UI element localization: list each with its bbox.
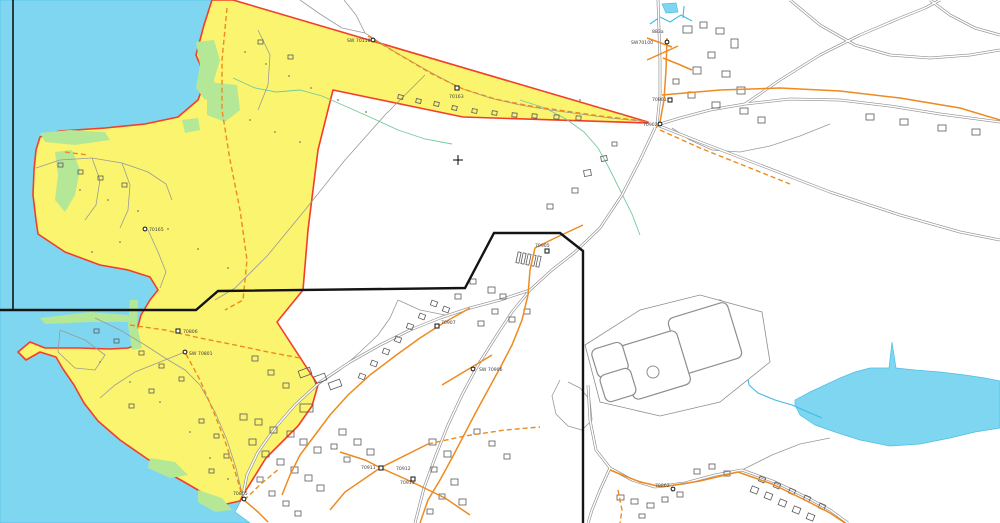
- asset-label: 70901: [652, 97, 667, 103]
- road-casing: [930, 0, 1000, 35]
- tree-speck: [129, 381, 131, 383]
- asset-label: 70902: [643, 122, 658, 128]
- building: [459, 499, 466, 505]
- building: [631, 499, 638, 504]
- tree-speck: [310, 87, 312, 89]
- asset-marker-circle: [665, 40, 669, 44]
- building: [317, 485, 324, 491]
- stream-blue: [650, 15, 692, 24]
- tree-speck: [167, 228, 169, 230]
- building: [478, 321, 484, 326]
- tree-speck: [137, 210, 139, 212]
- track-path: [552, 380, 592, 430]
- asset-marker-square: [455, 86, 459, 90]
- utility-main: [244, 500, 268, 522]
- asset-label: 70805: [233, 491, 248, 497]
- asset-label: SW 70801: [189, 351, 213, 357]
- building: [938, 125, 946, 131]
- building: [900, 119, 908, 125]
- asset-marker-square: [176, 329, 180, 333]
- building: [295, 511, 301, 516]
- asset-marker-circle: [671, 487, 675, 491]
- utility-main-dashed: [660, 130, 790, 184]
- road-centre: [790, 0, 1000, 58]
- tree-speck: [107, 199, 109, 201]
- tree-speck: [197, 248, 199, 250]
- building: [430, 300, 437, 307]
- asset-marker-square: [545, 249, 549, 253]
- asset-label: 70165: [149, 227, 164, 233]
- building: [344, 457, 350, 462]
- building: [504, 454, 510, 459]
- building: [740, 108, 748, 114]
- building: [314, 447, 321, 453]
- building: [584, 169, 592, 176]
- building: [639, 514, 645, 518]
- asset-marker-circle: [471, 367, 475, 371]
- building: [516, 252, 521, 263]
- asset-label: 70912: [396, 466, 411, 472]
- building: [709, 464, 715, 469]
- building: [708, 52, 715, 58]
- asset-label: 70913: [400, 480, 415, 486]
- tree-speck: [79, 189, 81, 191]
- tree-speck: [227, 478, 229, 480]
- asset-label: SW70100: [631, 40, 653, 46]
- asset-marker-square: [668, 98, 672, 102]
- asset-label: 70163: [449, 94, 464, 100]
- asset-marker-circle: [658, 122, 662, 126]
- tree-speck: [265, 63, 267, 65]
- asset-marker-square: [435, 324, 439, 328]
- building: [382, 348, 389, 355]
- tree-speck: [99, 361, 101, 363]
- ponds-layer: [585, 295, 770, 416]
- road-centre: [657, 99, 1000, 125]
- building: [367, 449, 374, 455]
- asset-marker-circle: [242, 497, 246, 501]
- building: [451, 479, 458, 485]
- building: [716, 28, 724, 34]
- building: [455, 294, 461, 299]
- building: [750, 486, 759, 494]
- tree-speck: [337, 99, 339, 101]
- building: [339, 429, 346, 435]
- building: [612, 142, 617, 146]
- building: [700, 22, 707, 28]
- crosshair-layer: [453, 155, 463, 165]
- track-path: [742, 438, 830, 470]
- building: [722, 71, 730, 77]
- building: [806, 513, 815, 521]
- tree-speck: [119, 241, 121, 243]
- asset-label: 70905: [535, 243, 550, 249]
- asset-label: 70862: [655, 483, 670, 489]
- road-centre: [930, 0, 1000, 35]
- building: [269, 491, 275, 496]
- asset-label: 70806: [183, 329, 198, 335]
- building: [470, 279, 476, 284]
- building: [427, 509, 433, 514]
- building: [300, 439, 307, 445]
- tree-speck: [244, 51, 246, 53]
- tree-speck: [227, 267, 229, 269]
- tree-speck: [274, 131, 276, 133]
- map-canvas[interactable]: SW 7011870163SW70100883a7090170902701657…: [0, 0, 1000, 523]
- road-casing: [657, 99, 1000, 125]
- lake-southeast: [795, 342, 1000, 446]
- building: [572, 188, 578, 193]
- road-centre: [657, 125, 1000, 240]
- building: [488, 287, 495, 293]
- asset-label: SW 70118: [347, 38, 371, 44]
- building: [277, 459, 284, 465]
- building: [972, 129, 980, 135]
- building: [792, 506, 801, 514]
- utility-main: [420, 225, 583, 523]
- asset-marker-circle: [143, 227, 147, 231]
- building: [328, 379, 342, 390]
- tree-speck: [288, 75, 290, 77]
- tree-speck: [91, 251, 93, 253]
- tree-speck: [159, 401, 161, 403]
- pond-north: [662, 3, 678, 13]
- building: [758, 117, 765, 123]
- utility-main: [647, 46, 678, 60]
- building: [647, 503, 654, 508]
- building: [354, 439, 361, 445]
- building: [444, 451, 451, 457]
- building: [536, 256, 541, 267]
- road-casing: [657, 125, 1000, 240]
- building: [764, 492, 773, 500]
- map-viewport[interactable]: SW 7011870163SW70100883a7090170902701657…: [0, 0, 1000, 523]
- building: [683, 26, 692, 33]
- asset-marker-square: [379, 466, 383, 470]
- building: [547, 204, 553, 209]
- road-casing: [790, 0, 1000, 58]
- tree-speck: [249, 119, 251, 121]
- building: [283, 501, 289, 506]
- building: [662, 497, 668, 502]
- building: [257, 477, 263, 482]
- utility-main: [738, 472, 845, 523]
- building: [406, 323, 413, 330]
- asset-marker-circle: [371, 38, 375, 42]
- tree-speck: [579, 99, 581, 101]
- building: [693, 67, 701, 74]
- building: [492, 309, 498, 314]
- tree-speck: [621, 113, 623, 115]
- building: [370, 360, 377, 367]
- building: [489, 441, 495, 446]
- building: [731, 39, 738, 48]
- asset-label: 70911: [361, 465, 376, 471]
- building: [394, 336, 401, 343]
- building: [737, 87, 745, 94]
- building: [866, 114, 874, 120]
- building: [442, 306, 449, 313]
- building: [694, 469, 700, 474]
- asset-label: 70907: [441, 320, 456, 326]
- utility-main: [663, 58, 692, 70]
- asset-label: 883a: [652, 29, 664, 35]
- track-path: [672, 124, 830, 152]
- building: [358, 373, 365, 380]
- building: [778, 499, 787, 507]
- tree-speck: [599, 107, 601, 109]
- tree-speck: [299, 141, 301, 143]
- tree-speck: [209, 457, 211, 459]
- building: [521, 253, 526, 264]
- building: [673, 79, 679, 84]
- building: [331, 444, 337, 449]
- tree-speck: [365, 111, 367, 113]
- asset-label: SW 70906: [479, 367, 503, 373]
- building: [418, 313, 425, 320]
- asset-marker-circle: [183, 350, 187, 354]
- tree-speck: [189, 431, 191, 433]
- building: [305, 475, 312, 481]
- building: [677, 492, 683, 497]
- building: [526, 254, 531, 265]
